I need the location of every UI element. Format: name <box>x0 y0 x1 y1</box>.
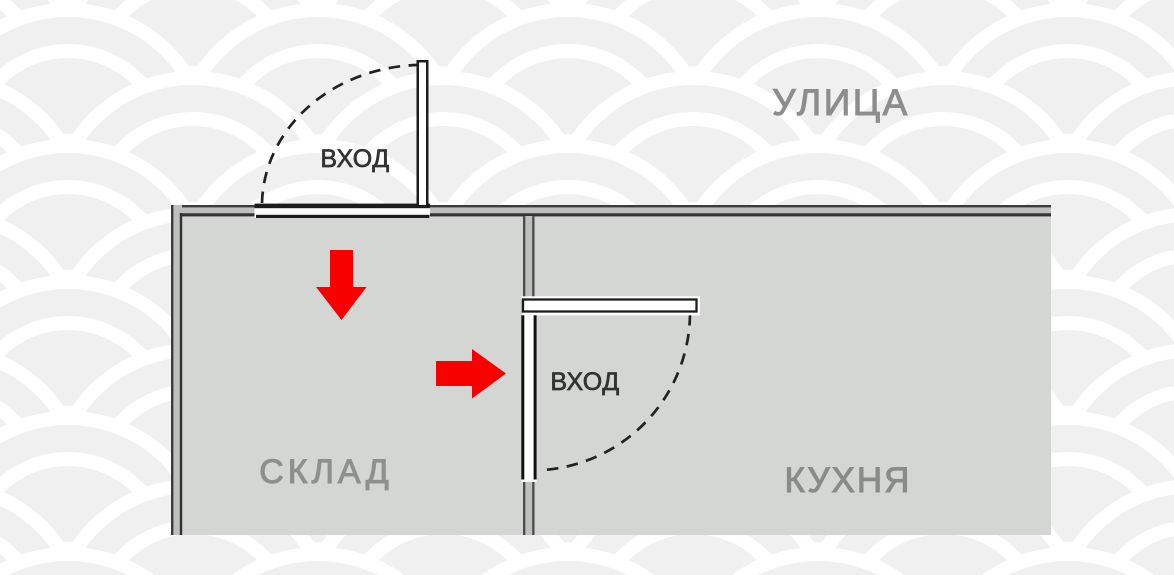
svg-text:СКЛАД: СКЛАД <box>259 453 393 491</box>
svg-text:КУХНЯ: КУХНЯ <box>785 461 912 500</box>
svg-text:ВХОД: ВХОД <box>550 368 619 396</box>
svg-text:ВХОД: ВХОД <box>320 145 389 173</box>
svg-text:УЛИЦА: УЛИЦА <box>772 82 910 123</box>
